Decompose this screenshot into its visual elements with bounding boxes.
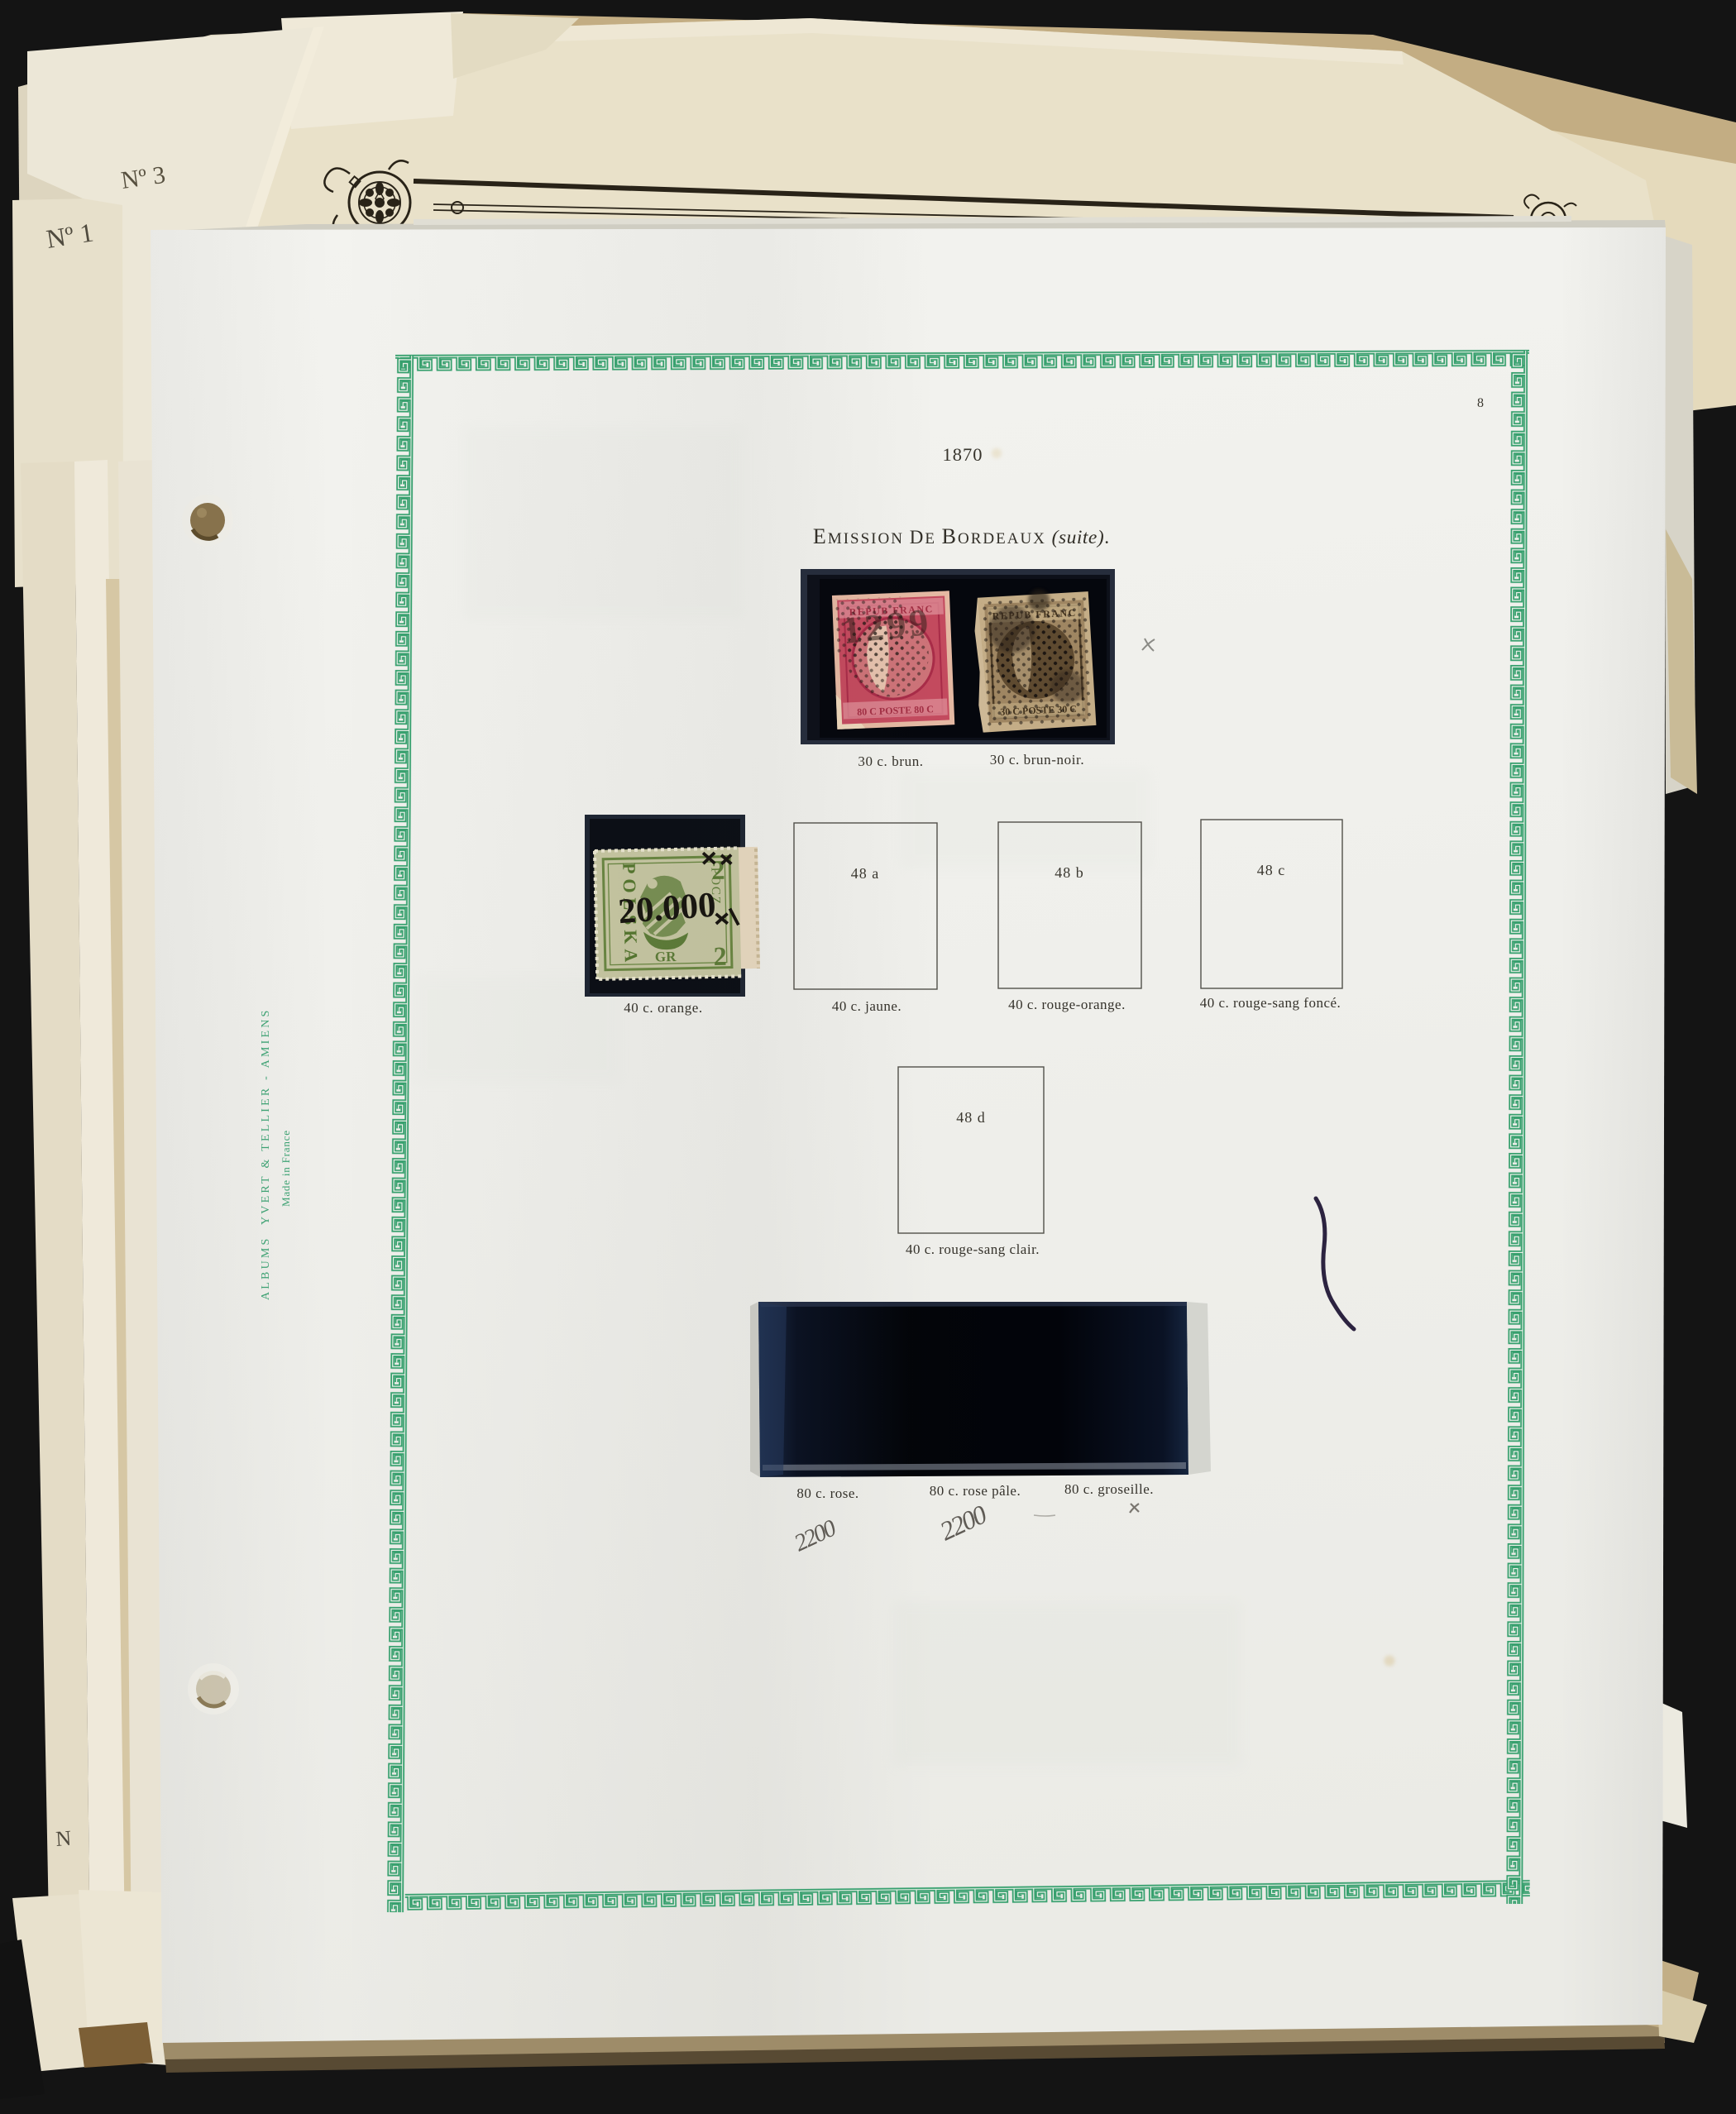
svg-text:N: N: [55, 1826, 72, 1851]
